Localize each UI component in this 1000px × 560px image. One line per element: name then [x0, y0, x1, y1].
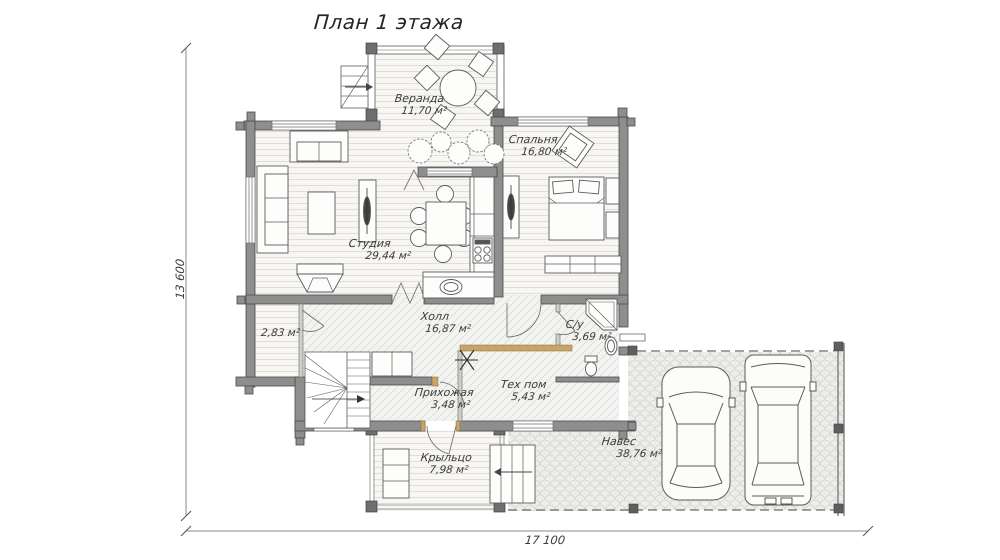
dimension-label-height: 13 600: [173, 248, 187, 309]
carport-floor: [628, 352, 844, 510]
window: [427, 168, 472, 176]
car-icon: [657, 367, 735, 500]
tv-icon: [503, 176, 519, 238]
stairs-icon: [305, 352, 370, 428]
dimension-label-width: 17 100: [504, 533, 585, 547]
window: [513, 421, 553, 431]
dining-table-icon: [426, 202, 466, 245]
room-label-veranda: Веранда 11,70 м²: [393, 93, 449, 117]
room-label-prihozhaya: Прихожая 3,48 м²: [413, 387, 474, 411]
floor-plan-page: План 1 этажа 13 600 17 100 Веранда 11,70…: [0, 0, 1000, 560]
room-label-tehpom: Тех пом 5,43 м²: [499, 379, 552, 403]
closet-floor: [256, 304, 299, 377]
room-label-kryltso: Крыльцо 7,98 м²: [419, 452, 473, 476]
toilet-icon: [585, 356, 597, 376]
room-label-spalnya: Спальня 16,80 м²: [507, 134, 569, 158]
stove-icon: [473, 238, 492, 263]
porch-steps-icon: [490, 445, 535, 503]
corner-sofa-icon: [257, 166, 288, 253]
wardrobe-icon: [545, 256, 621, 273]
sink-icon: [440, 280, 462, 295]
page-title: План 1 этажа: [313, 10, 464, 34]
coffee-table-icon: [308, 192, 335, 234]
room-label-naves: Навес 38,76 м²: [600, 436, 664, 460]
window: [272, 121, 336, 130]
bench-icon: [383, 449, 409, 498]
tv-icon: [359, 180, 376, 242]
sofa-icon: [290, 131, 348, 162]
room-label-studiya: Студия 29,44 м²: [347, 238, 413, 262]
room-label-kladovaya: 2,83 м²: [260, 327, 300, 339]
door-leaf: [620, 334, 645, 341]
bed-icon: [549, 177, 604, 240]
veranda-steps-icon: [341, 66, 373, 108]
room-label-holl: Холл 16,87 м²: [419, 311, 473, 335]
room-label-su: С/у 3,69 м²: [564, 319, 613, 343]
car-icon: [740, 355, 816, 505]
window: [246, 177, 255, 243]
floor-plan-drawing: [0, 0, 1000, 560]
hall-cabinet-icon: [372, 352, 412, 376]
window: [518, 117, 588, 126]
